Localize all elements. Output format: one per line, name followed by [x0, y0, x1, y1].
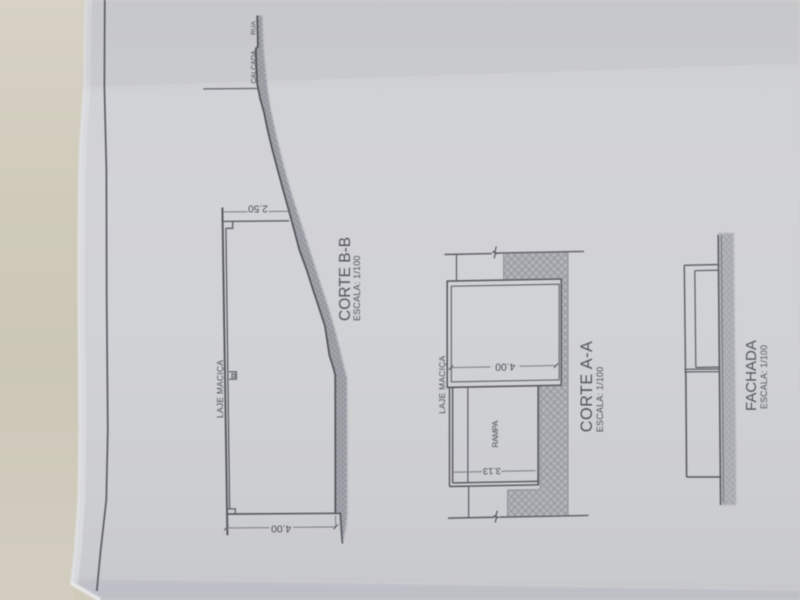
svg-text:ESCALA: 1/100: ESCALA: 1/100	[759, 345, 769, 409]
svg-text:RUA: RUA	[251, 20, 258, 35]
svg-text:RAMPA: RAMPA	[491, 420, 500, 448]
svg-text:FACHADA: FACHADA	[743, 340, 760, 411]
svg-text:ESCALA: 1/100: ESCALA: 1/100	[352, 255, 362, 321]
svg-text:CORTE A-A: CORTE A-A	[578, 341, 596, 432]
svg-text:4.00: 4.00	[271, 523, 291, 534]
svg-text:4.00: 4.00	[495, 360, 515, 371]
svg-text:LAJE MACIÇA: LAJE MACIÇA	[437, 355, 447, 414]
svg-text:2.50: 2.50	[248, 203, 268, 214]
svg-text:LAJE MACIÇA: LAJE MACIÇA	[215, 360, 225, 418]
svg-text:ESCALA: 1/100: ESCALA: 1/100	[595, 367, 605, 433]
svg-text:3.13: 3.13	[483, 466, 501, 476]
svg-text:CALÇADA: CALÇADA	[251, 50, 258, 83]
